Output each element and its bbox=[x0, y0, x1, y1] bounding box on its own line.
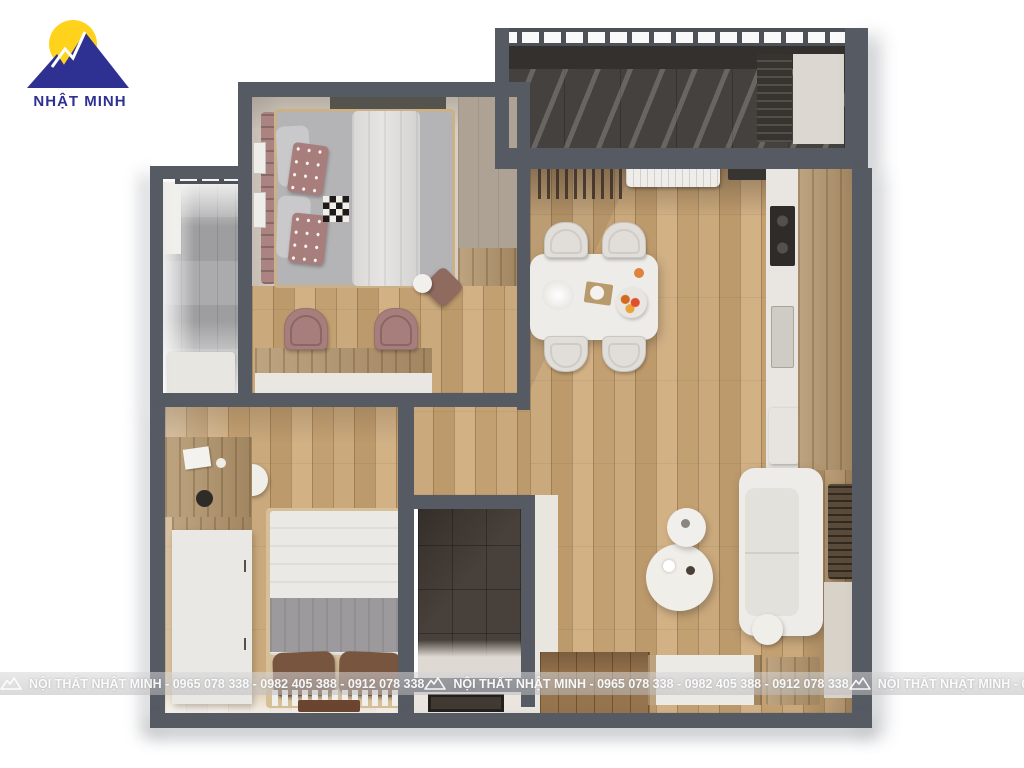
coffee-table-small-decor bbox=[681, 519, 690, 528]
cabinet-handle-2 bbox=[244, 638, 246, 650]
dining-chair-1 bbox=[544, 222, 588, 258]
watermark-bar: NỘI THẤT NHẬT MINH - 0965 078 338 - 0982… bbox=[0, 672, 1024, 695]
mountain-icon bbox=[849, 676, 871, 691]
bedroom2-blanket bbox=[270, 598, 404, 652]
coffee-table-large bbox=[646, 544, 713, 611]
balcony-right-wall bbox=[845, 28, 868, 168]
master-right-wall bbox=[517, 82, 530, 410]
table-flowers bbox=[542, 280, 574, 310]
watermark-item: NỘI THẤT NHẬT MINH - 0965 078 338 - 0982… bbox=[424, 676, 848, 691]
master-bottom-wall bbox=[150, 393, 530, 407]
desk-notebook bbox=[183, 446, 212, 469]
floor-plan-render: NỘI THẤT NHẬT MINH - 0965 078 338 - 0982… bbox=[0, 0, 1024, 768]
wall-frame-2 bbox=[253, 192, 266, 228]
bedroom2-right-wall bbox=[398, 400, 414, 713]
bathroom-door-mat bbox=[428, 694, 504, 712]
bedroom2-door-mat bbox=[298, 700, 360, 712]
coffee-table-decor-vase bbox=[663, 560, 675, 572]
balcony-left-wall bbox=[495, 28, 509, 168]
orange-fruit bbox=[634, 268, 644, 278]
master-bed-duvet bbox=[352, 111, 420, 286]
kitchen-cabinets-upper bbox=[798, 162, 854, 408]
hallway-floor bbox=[412, 407, 530, 495]
vanity-chair-2 bbox=[374, 308, 418, 350]
living-top-wall bbox=[495, 148, 868, 169]
service-balcony-door bbox=[163, 182, 181, 254]
vanity-counter bbox=[255, 348, 432, 373]
mountain-icon bbox=[0, 676, 22, 691]
washing-machine bbox=[167, 352, 235, 398]
right-exterior-wall bbox=[852, 168, 872, 728]
checkerboard-item bbox=[323, 196, 349, 222]
watermark-item: NỘI THẤT NHẬT MINH - 0965 078 338 - 0982… bbox=[0, 676, 424, 691]
balcony-railing bbox=[495, 28, 847, 46]
desk-cup bbox=[216, 458, 226, 468]
master-top-wall bbox=[238, 82, 530, 97]
ac-outdoor-unit bbox=[757, 54, 792, 142]
mountain-sun-icon bbox=[21, 12, 139, 92]
dining-chair-4 bbox=[602, 336, 646, 372]
kitchen-stove bbox=[770, 206, 795, 266]
vanity-chair-1 bbox=[284, 308, 328, 350]
kitchen-appliance bbox=[769, 408, 799, 464]
brand-logo: NHẬT MINH bbox=[18, 12, 142, 116]
master-accent-pillow-1 bbox=[287, 142, 330, 197]
master-wardrobe-shelf bbox=[458, 248, 517, 286]
mountain-icon bbox=[424, 676, 446, 691]
bathroom-top-wall bbox=[405, 495, 535, 509]
watermark-item: NỘI THẤT NHẬT MINH - 0965 078 338 - 0982… bbox=[849, 676, 1024, 691]
table-tray bbox=[584, 281, 614, 306]
master-window-bar bbox=[330, 97, 446, 109]
bedroom2-cabinet-top bbox=[172, 517, 252, 530]
clothes-rail bbox=[538, 166, 624, 199]
desk-plate bbox=[196, 490, 213, 507]
brand-name: NHẬT MINH bbox=[18, 93, 142, 110]
tray-plate bbox=[589, 285, 605, 301]
cabinet-handle-1 bbox=[244, 560, 246, 572]
dining-chair-2 bbox=[602, 222, 646, 258]
sofa bbox=[739, 468, 823, 636]
watermark-text: NỘI THẤT NHẬT MINH - 0965 078 338 - 0982… bbox=[878, 677, 1024, 691]
white-pouf bbox=[752, 614, 783, 645]
kitchen-sink bbox=[771, 306, 794, 368]
watermark-text: NỘI THẤT NHẬT MINH - 0965 078 338 - 0982… bbox=[453, 677, 848, 691]
balcony-panel bbox=[793, 54, 844, 144]
wall-frame-1 bbox=[253, 142, 266, 174]
coffee-table-decor-dark bbox=[686, 566, 695, 575]
service-balcony-top-wall bbox=[150, 166, 240, 179]
master-left-wall bbox=[238, 82, 252, 407]
watermark-text: NỘI THẤT NHẬT MINH - 0965 078 338 - 0982… bbox=[29, 677, 424, 691]
kitchen-cabinets-lower bbox=[798, 408, 854, 470]
fruit-bowl bbox=[616, 287, 647, 318]
service-balcony-left-wall bbox=[150, 166, 163, 407]
sofa-seat bbox=[745, 488, 799, 616]
dining-chair-3 bbox=[544, 336, 588, 372]
master-decor-ball bbox=[413, 274, 432, 293]
bottom-exterior-wall bbox=[150, 713, 872, 728]
vanity-front bbox=[255, 373, 432, 393]
